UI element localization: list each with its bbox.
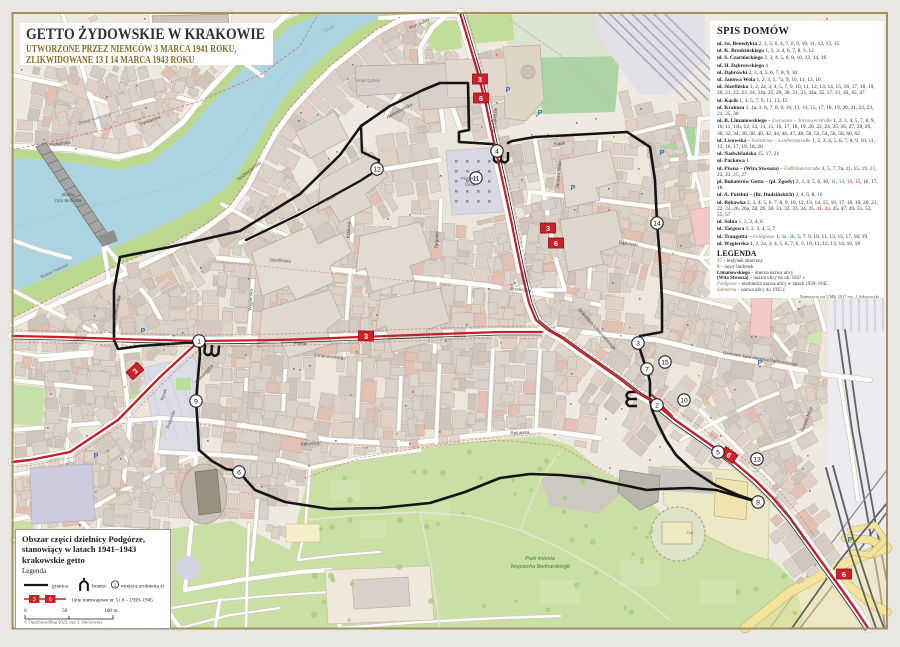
svg-text:Targowa: Targowa [434, 231, 440, 249]
svg-text:P: P [848, 537, 853, 544]
svg-text:Legenda: Legenda [22, 567, 47, 575]
svg-text:6: 6 [237, 470, 241, 477]
svg-text:8: 8 [756, 500, 760, 507]
svg-text:P: P [141, 328, 146, 335]
svg-text:Ojca Bernatka: Ojca Bernatka [55, 198, 82, 203]
svg-text:3: 3 [546, 224, 550, 233]
svg-text:P: P [94, 453, 99, 460]
svg-text:14: 14 [653, 221, 661, 228]
svg-text:6: 6 [479, 94, 483, 103]
svg-text:Krakusa: Krakusa [346, 221, 352, 239]
svg-text:P: P [538, 110, 543, 117]
svg-text:linie tramwajowe nr 3 i 6 – 19: linie tramwajowe nr 3 i 6 – 1939–1945 [72, 597, 153, 603]
svg-text:0: 0 [24, 608, 27, 614]
svg-text:2: 2 [655, 403, 659, 410]
svg-text:6: 6 [49, 597, 52, 603]
svg-text:Kładka: Kładka [62, 192, 75, 197]
svg-text:P: P [571, 185, 576, 192]
svg-text:Kącik: Kącik [554, 140, 566, 146]
svg-text:9: 9 [194, 399, 198, 406]
svg-text:Fort: Fort [687, 531, 695, 535]
svg-text:4: 4 [495, 149, 499, 156]
svg-text:Park imienia: Park imienia [525, 556, 555, 562]
svg-text:P: P [660, 150, 665, 157]
svg-text:Getta: Getta [465, 182, 476, 187]
svg-text:100 m: 100 m [104, 608, 118, 614]
svg-text:1: 1 [197, 339, 201, 346]
svg-text:3: 3 [636, 341, 640, 348]
svg-text:5: 5 [716, 450, 720, 457]
svg-text:6: 6 [554, 239, 558, 248]
svg-text:7: 7 [645, 367, 649, 374]
svg-text:50: 50 [62, 608, 68, 614]
svg-text:Plac Boh.: Plac Boh. [461, 176, 479, 181]
svg-text:6: 6 [842, 570, 846, 579]
svg-text:brama: brama [92, 583, 106, 589]
svg-text:granica: granica [52, 583, 68, 589]
svg-text:P: P [506, 87, 511, 94]
svg-text:© OpenStreetMap 2023, opr. J.: © OpenStreetMap 2023, opr. J. Sikorowski [24, 619, 103, 624]
svg-text:3: 3 [478, 75, 482, 84]
svg-text:12: 12 [373, 167, 381, 174]
svg-text:miejsca zrobienia zdjęć: miejsca zrobienia zdjęć [121, 583, 164, 589]
svg-text:13: 13 [753, 457, 761, 464]
svg-text:Rękawka: Rękawka [510, 429, 530, 435]
svg-text:Wojciecha Bednarskiego: Wojciecha Bednarskiego [510, 564, 569, 570]
svg-text:Hotel Qubus: Hotel Qubus [356, 78, 379, 83]
svg-text:3: 3 [364, 332, 368, 341]
svg-text:15: 15 [661, 360, 669, 367]
svg-text:10: 10 [680, 398, 688, 405]
svg-text:3: 3 [33, 597, 36, 603]
svg-text:Piwna: Piwna [294, 341, 307, 346]
